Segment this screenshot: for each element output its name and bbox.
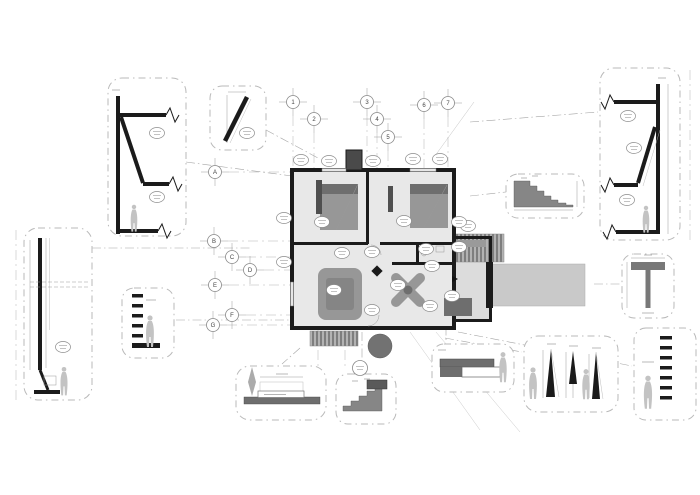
detail-panel-slope-detail	[210, 86, 266, 150]
deck-strip-bottom	[310, 331, 358, 346]
detail-panel-stair-profile-right	[506, 174, 584, 218]
detail-label	[150, 192, 165, 203]
wardrobe-1	[316, 180, 322, 214]
detail-label	[150, 128, 165, 139]
grid-label: G	[211, 323, 216, 329]
detail-panel-stair-section-left	[122, 288, 174, 358]
planter-box	[367, 380, 387, 389]
detail-label	[621, 111, 636, 122]
detail-panel-planter-section	[236, 366, 326, 420]
detail-panel-t-column	[622, 254, 674, 318]
architectural-plan-sheet: 1 2 3 4 5 6 7 A B C D E F G	[0, 0, 700, 495]
detail-panel-roof-section-right	[600, 68, 680, 240]
detail-label	[240, 128, 255, 139]
grid-label: F	[230, 313, 234, 319]
tree-canopy	[368, 334, 392, 358]
detail-panel-tapered-columns	[524, 336, 618, 412]
wardrobe-2	[388, 186, 393, 212]
detail-label	[620, 195, 635, 206]
detail-panel-roof-section-left	[108, 78, 186, 238]
detail-label	[353, 361, 368, 376]
grid-label: A	[213, 170, 217, 176]
terrace	[492, 264, 585, 306]
grid-label: D	[248, 268, 253, 274]
grid-label: C	[230, 255, 235, 261]
grid-label: E	[213, 283, 217, 289]
grid-label: B	[212, 239, 216, 245]
detail-label	[627, 143, 642, 154]
plan-sheet-canvas: 1 2 3 4 5 6 7 A B C D E F G	[0, 0, 700, 495]
detail-panel-wall-section-left	[24, 228, 92, 400]
chimney	[346, 150, 362, 170]
detail-panel-bench-section	[432, 344, 514, 392]
detail-label	[56, 342, 71, 353]
detail-panel-stair-section-right	[634, 328, 696, 420]
